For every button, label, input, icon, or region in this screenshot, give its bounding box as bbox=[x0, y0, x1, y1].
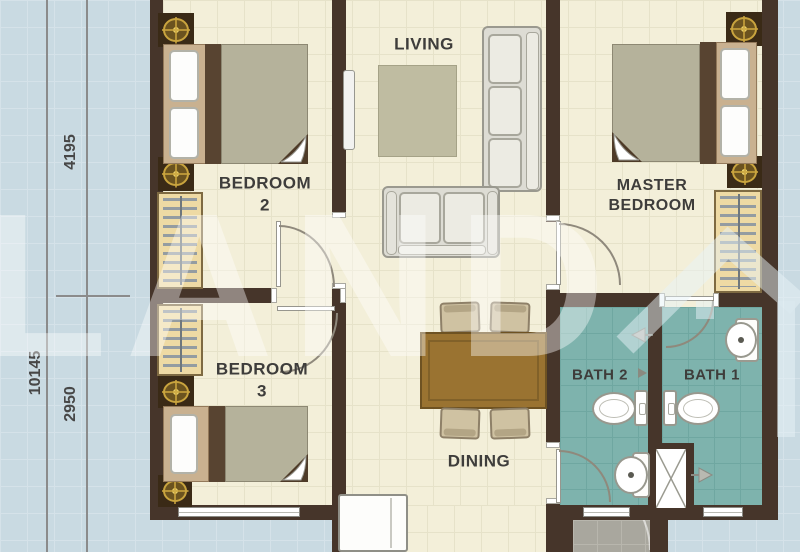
sofa-loveseat bbox=[382, 186, 500, 258]
bedroom2-pillow bbox=[169, 107, 199, 159]
bath2-toilet-tank bbox=[634, 390, 648, 426]
bedroom2-wardrobe bbox=[157, 192, 203, 289]
duvet-fold bbox=[612, 132, 642, 162]
bath1-toilet-tank bbox=[663, 390, 677, 426]
wall-bedroom2-bedroom3 bbox=[150, 288, 277, 303]
porch-slab bbox=[573, 520, 650, 552]
doorframe-cap bbox=[546, 442, 560, 448]
wall-tv bbox=[343, 70, 355, 150]
sofa-cushion bbox=[443, 192, 485, 244]
floor-plan: 10145 4195 2950 bbox=[0, 0, 800, 552]
doorframe-cap bbox=[340, 288, 346, 303]
bedroom3-bed-frame bbox=[209, 406, 225, 482]
wall-right-exterior bbox=[762, 0, 778, 520]
bedroom2-pillow bbox=[169, 50, 199, 102]
dimension-line-outer bbox=[46, 0, 48, 552]
window-bath2 bbox=[583, 507, 630, 517]
master-wardrobe bbox=[714, 190, 762, 293]
master-bed-frame bbox=[700, 42, 716, 164]
wall-porch-left bbox=[546, 520, 573, 552]
dimension-label-upper: 4195 bbox=[62, 134, 80, 170]
dining-chair bbox=[489, 301, 530, 333]
doorframe-cap bbox=[332, 212, 346, 218]
bath1-toilet-bowl bbox=[676, 392, 720, 425]
shower-head-icon bbox=[690, 465, 714, 485]
bedroom3-label-line1: BEDROOM bbox=[216, 358, 308, 379]
dining-chair bbox=[489, 407, 530, 439]
living-label: LIVING bbox=[394, 33, 454, 54]
sofa-cushion bbox=[399, 192, 441, 244]
wall-bath-top-west bbox=[546, 293, 665, 307]
wardrobe-rod bbox=[180, 308, 182, 372]
sofa-armrest bbox=[386, 191, 397, 255]
bath1-basin bbox=[725, 322, 757, 358]
dining-table bbox=[420, 332, 547, 409]
master-label-line1: MASTER bbox=[617, 176, 688, 196]
bedroom3-pillow bbox=[170, 414, 198, 474]
doorframe-cap bbox=[271, 288, 277, 303]
window-bedroom3 bbox=[178, 507, 300, 517]
bedroom3-label-line2: 3 bbox=[257, 380, 267, 401]
master-label-line2: BEDROOM bbox=[608, 196, 695, 216]
master-pillow bbox=[720, 105, 750, 157]
entry-cabinet bbox=[338, 494, 408, 552]
service-shaft-inner bbox=[656, 449, 686, 508]
sofa-three-seat bbox=[482, 26, 542, 192]
bath2-basin bbox=[614, 456, 648, 494]
sofa-front-edge bbox=[398, 245, 486, 255]
duvet-fold bbox=[278, 134, 308, 164]
bath1-label: BATH 1 bbox=[684, 367, 740, 386]
bedroom3-wardrobe bbox=[157, 304, 203, 376]
master-pillow bbox=[720, 48, 750, 100]
sofa-cushion bbox=[488, 34, 522, 84]
sofa-backrest bbox=[526, 32, 539, 190]
bath2-toilet-bowl bbox=[592, 392, 636, 425]
sofa-cushion bbox=[488, 138, 522, 188]
bedroom2-bed-frame bbox=[205, 44, 221, 164]
wall-porch-right bbox=[650, 520, 668, 552]
sofa-armrest bbox=[487, 191, 498, 255]
dimension-label-lower: 2950 bbox=[62, 386, 80, 422]
dining-chair bbox=[439, 407, 480, 439]
wall-living-master bbox=[546, 0, 560, 222]
bedroom3-door-leaf bbox=[277, 306, 335, 311]
ceiling-light-icon bbox=[158, 376, 194, 408]
bath2-label: BATH 2 bbox=[572, 367, 628, 386]
duvet-fold bbox=[280, 454, 308, 482]
ceiling-light-icon bbox=[726, 12, 762, 46]
dimension-line-inner bbox=[86, 0, 88, 552]
sofa-cushion bbox=[488, 86, 522, 136]
window-bath1 bbox=[703, 507, 743, 517]
dimension-tick bbox=[56, 295, 130, 297]
floor-drain-icon bbox=[638, 368, 647, 378]
shower-head-icon bbox=[630, 325, 654, 345]
wall-dining-bath2 bbox=[546, 307, 560, 448]
ceiling-light-icon bbox=[158, 13, 194, 47]
bedroom2-label-line1: BEDROOM bbox=[219, 172, 311, 193]
porch-door-arc bbox=[575, 520, 650, 550]
living-rug bbox=[378, 65, 457, 157]
dining-chair bbox=[439, 301, 480, 333]
bedroom2-label-line2: 2 bbox=[260, 194, 270, 215]
wardrobe-rod bbox=[738, 194, 740, 289]
dining-label: DINING bbox=[448, 450, 511, 471]
wardrobe-rod bbox=[180, 196, 182, 285]
dimension-label-total: 10145 bbox=[27, 351, 45, 396]
